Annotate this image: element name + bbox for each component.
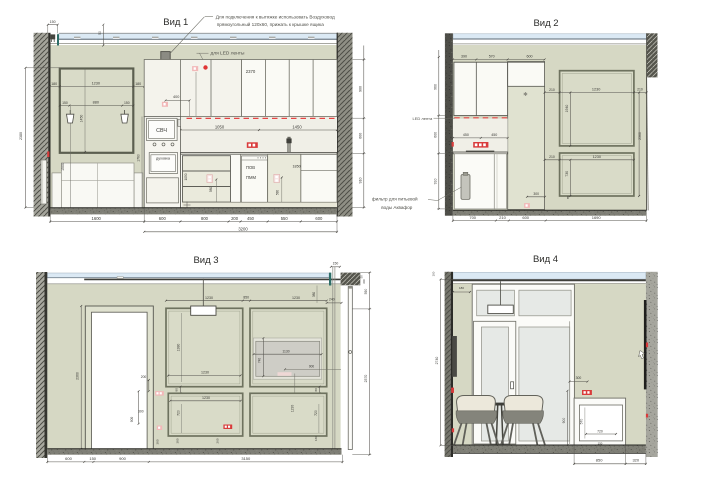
svg-text:450: 450 — [463, 133, 469, 137]
svg-text:730: 730 — [565, 171, 569, 177]
svg-text:850: 850 — [596, 458, 603, 463]
svg-text:900: 900 — [562, 418, 566, 424]
svg-text:550: 550 — [281, 216, 289, 221]
svg-text:1450: 1450 — [79, 115, 83, 123]
svg-text:Вид 1: Вид 1 — [163, 17, 188, 28]
svg-text:200: 200 — [141, 375, 147, 379]
svg-text:910: 910 — [434, 179, 438, 185]
svg-text:1940: 1940 — [565, 105, 569, 113]
svg-text:Для подключения к вытяжке испо: Для подключения к вытяжке использовать В… — [216, 14, 335, 19]
svg-text:1760: 1760 — [136, 154, 140, 162]
svg-text:300: 300 — [576, 376, 582, 380]
svg-text:570: 570 — [489, 54, 495, 58]
svg-text:900: 900 — [119, 456, 126, 461]
svg-text:духовка: духовка — [156, 156, 171, 160]
svg-text:720: 720 — [177, 410, 181, 416]
svg-text:50: 50 — [360, 275, 364, 279]
svg-text:850: 850 — [243, 295, 249, 299]
svg-text:720: 720 — [597, 429, 603, 433]
svg-text:300: 300 — [533, 192, 539, 196]
svg-text:380: 380 — [156, 439, 160, 444]
svg-text:ПОВ: ПОВ — [246, 165, 255, 170]
svg-text:прямоугольный 120х60, прижать: прямоугольный 120х60, прижать к крышке я… — [217, 21, 325, 27]
svg-text:3150: 3150 — [241, 456, 251, 461]
svg-text:600: 600 — [359, 133, 363, 139]
svg-text:ПММ: ПММ — [246, 175, 256, 180]
svg-text:900: 900 — [309, 364, 315, 368]
svg-text:210: 210 — [637, 87, 643, 91]
svg-text:600: 600 — [527, 54, 533, 58]
svg-text:910: 910 — [359, 178, 363, 184]
svg-text:300: 300 — [138, 410, 144, 414]
svg-text:1050: 1050 — [184, 173, 188, 180]
svg-text:1450: 1450 — [292, 125, 302, 130]
svg-text:1050: 1050 — [215, 125, 225, 130]
svg-text:1690: 1690 — [592, 215, 602, 220]
svg-text:380: 380 — [175, 438, 179, 443]
svg-text:180: 180 — [51, 82, 57, 86]
svg-text:740: 740 — [257, 358, 261, 364]
svg-text:2360: 2360 — [76, 372, 80, 380]
svg-text:210: 210 — [549, 88, 555, 92]
svg-text:✱: ✱ — [523, 91, 528, 98]
svg-text:240: 240 — [329, 297, 335, 301]
svg-text:80: 80 — [175, 388, 179, 392]
svg-text:Вид 4: Вид 4 — [533, 254, 558, 265]
svg-text:50: 50 — [98, 31, 102, 35]
svg-text:1230: 1230 — [593, 155, 601, 159]
svg-text:800: 800 — [201, 216, 209, 221]
svg-text:фильтр для питьевой: фильтр для питьевой — [372, 196, 418, 202]
svg-text:85: 85 — [566, 196, 570, 200]
svg-text:1230: 1230 — [592, 87, 600, 91]
svg-text:1230: 1230 — [292, 296, 300, 300]
svg-text:Вид 2: Вид 2 — [533, 18, 558, 29]
svg-text:LED лента: LED лента — [413, 116, 433, 121]
svg-text:1380: 1380 — [177, 344, 181, 352]
svg-text:2380: 2380 — [19, 132, 23, 140]
svg-text:260: 260 — [215, 438, 219, 443]
svg-text:2370: 2370 — [246, 69, 256, 74]
svg-text:880: 880 — [93, 100, 99, 104]
svg-text:320: 320 — [632, 458, 639, 463]
svg-text:600: 600 — [315, 216, 323, 221]
svg-text:450: 450 — [247, 216, 255, 221]
svg-text:1600: 1600 — [92, 216, 102, 221]
svg-text:150: 150 — [50, 20, 56, 24]
svg-text:100: 100 — [432, 271, 436, 276]
svg-text:1230: 1230 — [92, 81, 100, 85]
svg-text:для LED ленты: для LED ленты — [211, 51, 246, 57]
svg-text:900: 900 — [130, 417, 134, 423]
svg-text:600: 600 — [522, 215, 529, 220]
svg-text:150: 150 — [124, 101, 130, 105]
svg-text:600: 600 — [434, 132, 438, 138]
svg-text:Вид 3: Вид 3 — [193, 255, 218, 266]
svg-text:1230: 1230 — [201, 371, 209, 375]
svg-text:720: 720 — [314, 410, 318, 416]
svg-text:1850: 1850 — [292, 165, 300, 169]
svg-text:400: 400 — [173, 95, 179, 99]
svg-text:580: 580 — [209, 187, 213, 193]
svg-text:80: 80 — [314, 388, 318, 392]
svg-text:450: 450 — [491, 133, 497, 137]
svg-text:1500: 1500 — [61, 163, 65, 171]
svg-text:2740: 2740 — [435, 357, 439, 365]
svg-text:380: 380 — [312, 292, 316, 298]
svg-text:300: 300 — [362, 279, 366, 284]
svg-text:600: 600 — [159, 216, 167, 221]
svg-text:580: 580 — [276, 190, 280, 196]
svg-text:150: 150 — [89, 456, 96, 461]
svg-text:960: 960 — [434, 84, 438, 90]
svg-text:1230: 1230 — [291, 405, 295, 413]
svg-text:150: 150 — [62, 101, 68, 105]
svg-text:1230: 1230 — [202, 396, 210, 400]
svg-text:1130: 1130 — [282, 349, 289, 353]
svg-text:390: 390 — [461, 54, 467, 58]
svg-text:200: 200 — [231, 216, 239, 221]
svg-text:900: 900 — [359, 86, 363, 92]
svg-text:210: 210 — [499, 215, 506, 220]
svg-text:180: 180 — [459, 286, 464, 290]
svg-text:210: 210 — [549, 155, 555, 159]
svg-text:600: 600 — [65, 456, 72, 461]
svg-text:570: 570 — [580, 419, 584, 425]
svg-text:3200: 3200 — [238, 227, 248, 232]
svg-text:2360: 2360 — [638, 132, 642, 140]
svg-text:воды Аквафор: воды Аквафор — [381, 205, 412, 210]
svg-text:180: 180 — [135, 82, 141, 86]
svg-text:СВЧ: СВЧ — [156, 128, 167, 134]
svg-text:150: 150 — [333, 262, 339, 266]
svg-text:1230: 1230 — [205, 296, 213, 300]
svg-text:590: 590 — [364, 289, 368, 295]
svg-text:2370: 2370 — [364, 375, 368, 383]
svg-text:160: 160 — [314, 436, 318, 441]
svg-text:700: 700 — [469, 215, 476, 220]
